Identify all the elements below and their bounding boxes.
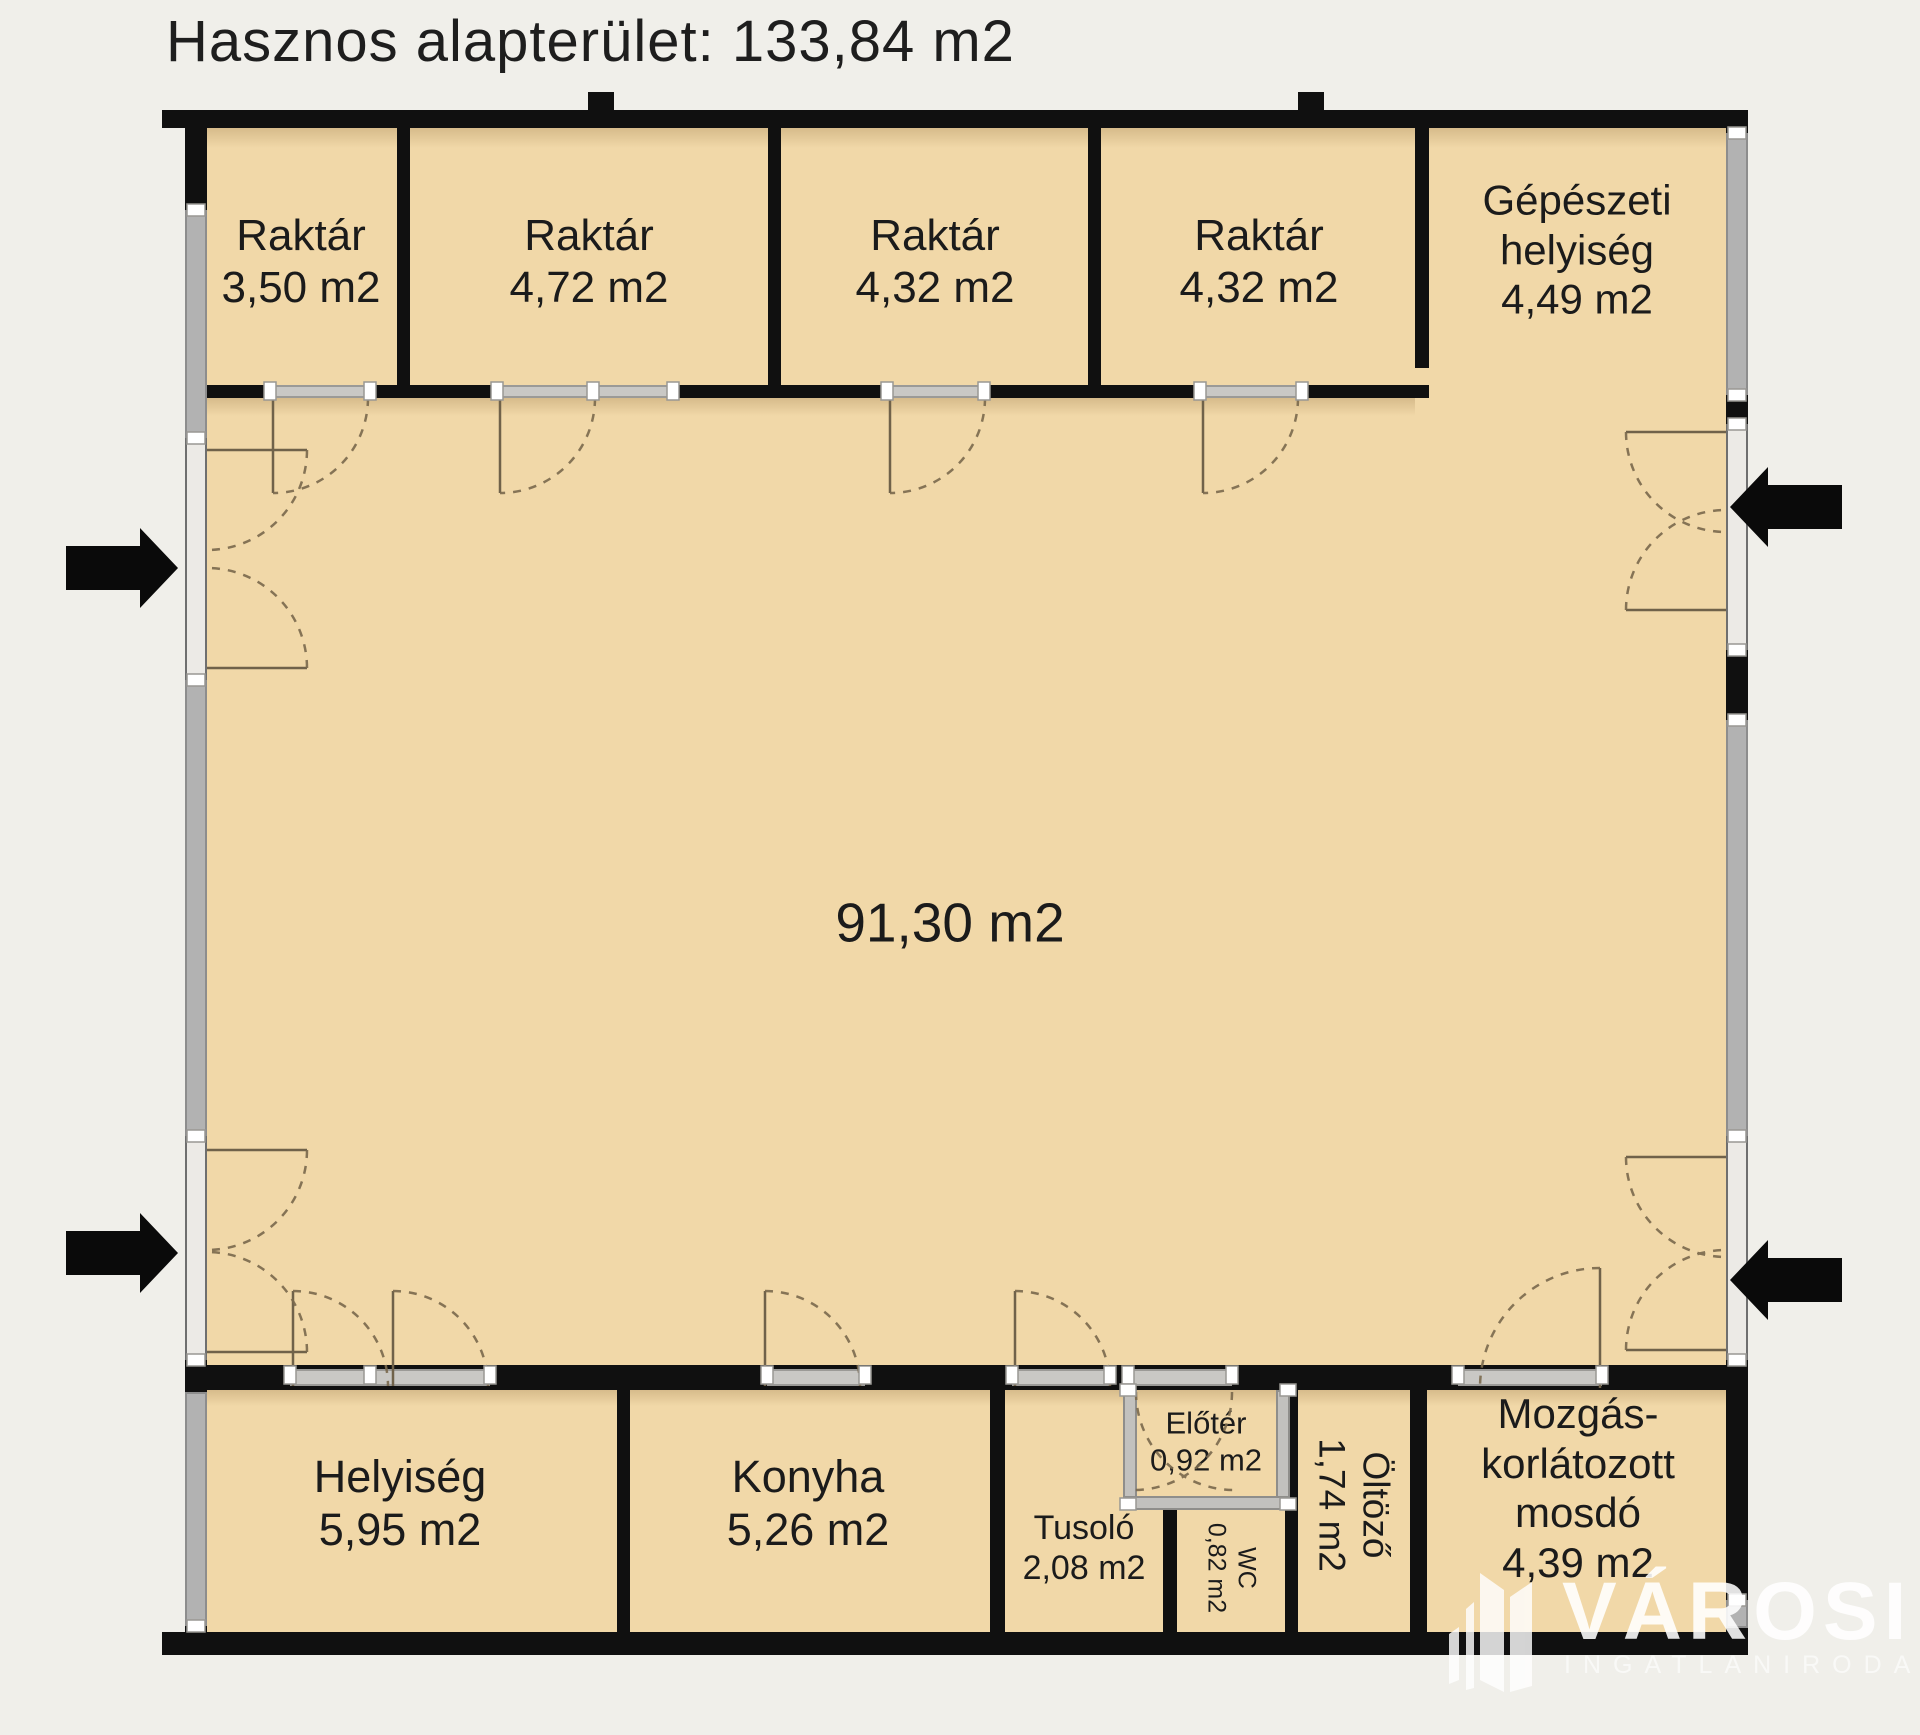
wall-divider: [1088, 128, 1101, 385]
room-label-raktar-2: Raktár4,72 m2: [510, 210, 669, 314]
wall-segment-left: [185, 110, 207, 210]
wall-divider: [990, 1390, 1005, 1632]
wall-segment-left: [185, 1360, 207, 1392]
wall-divider: [1415, 128, 1429, 368]
door-opening-left-lower: [185, 1136, 207, 1360]
watermark-brand: VÁROSI: [1562, 1565, 1912, 1659]
watermark-subtitle: INGATLANIRODA: [1564, 1651, 1920, 1680]
window-segment: [185, 1392, 207, 1626]
room-label-eloter: Előtér0,92 m2: [1150, 1405, 1262, 1478]
wall-shadow: [207, 128, 1726, 148]
wall-segment-right: [1726, 110, 1748, 133]
door-threshold: [887, 385, 984, 398]
wall-stub: [588, 92, 614, 112]
wall-segment-left: [185, 1626, 207, 1655]
wall-divider: [617, 1390, 630, 1632]
room-label-main-hall: 91,30 m2: [835, 891, 1064, 956]
wall-segment-top: [162, 110, 1748, 128]
watermark: VÁROSI INGATLANIRODA: [1430, 1545, 1920, 1730]
door-opening-right-lower: [1726, 1136, 1748, 1360]
wall-divider: [1163, 1496, 1177, 1632]
eloter-wall: [1123, 1390, 1137, 1510]
door-threshold: [497, 385, 673, 398]
wall-segment-right: [1726, 650, 1748, 720]
wall-divider: [768, 128, 781, 385]
room-label-tusolo: Tusoló2,08 m2: [1023, 1508, 1146, 1588]
door-threshold: [290, 1369, 490, 1386]
wall-divider: [1410, 1390, 1427, 1632]
eloter-wall: [1123, 1496, 1290, 1510]
wall-stub: [1298, 92, 1324, 112]
eloter-wall: [1276, 1390, 1290, 1510]
room-label-gepeszeti: Gépészetihelyiség4,49 m2: [1482, 176, 1671, 325]
door-opening-right-upper: [1726, 424, 1748, 650]
page-title: Hasznos alapterület: 133,84 m2: [166, 8, 1015, 75]
room-label-helyiseg: Helyiség5,95 m2: [314, 1450, 487, 1556]
room-label-oltozo: Öltöző1,74 m2: [1310, 1438, 1397, 1572]
door-threshold: [1012, 1369, 1110, 1386]
entrance-arrow-icon: [66, 528, 178, 608]
door-threshold: [270, 385, 370, 398]
room-label-konyha: Konyha5,26 m2: [727, 1450, 890, 1556]
room-label-wc: WC0,82 m2: [1202, 1523, 1261, 1613]
room-label-raktar-4: Raktár4,32 m2: [1180, 210, 1339, 314]
wall-shadow: [207, 398, 1415, 416]
wall-divider: [397, 128, 410, 385]
wall-segment-right: [1726, 395, 1748, 424]
room-label-raktar-1: Raktár3,50 m2: [222, 210, 381, 314]
door-threshold: [1128, 1369, 1232, 1386]
door-threshold: [1458, 1369, 1602, 1386]
watermark-logo-icon: [1430, 1545, 1550, 1730]
window-segment: [1726, 720, 1748, 1136]
room-label-raktar-3: Raktár4,32 m2: [856, 210, 1015, 314]
door-threshold: [767, 1369, 865, 1386]
window-segment: [185, 210, 207, 438]
window-segment: [185, 680, 207, 1136]
floorplan-canvas: Hasznos alapterület: 133,84 m2: [0, 0, 1920, 1730]
window-segment: [1726, 133, 1748, 395]
door-threshold: [1200, 385, 1302, 398]
entrance-arrow-icon: [66, 1213, 178, 1293]
door-opening-left-upper: [185, 438, 207, 680]
